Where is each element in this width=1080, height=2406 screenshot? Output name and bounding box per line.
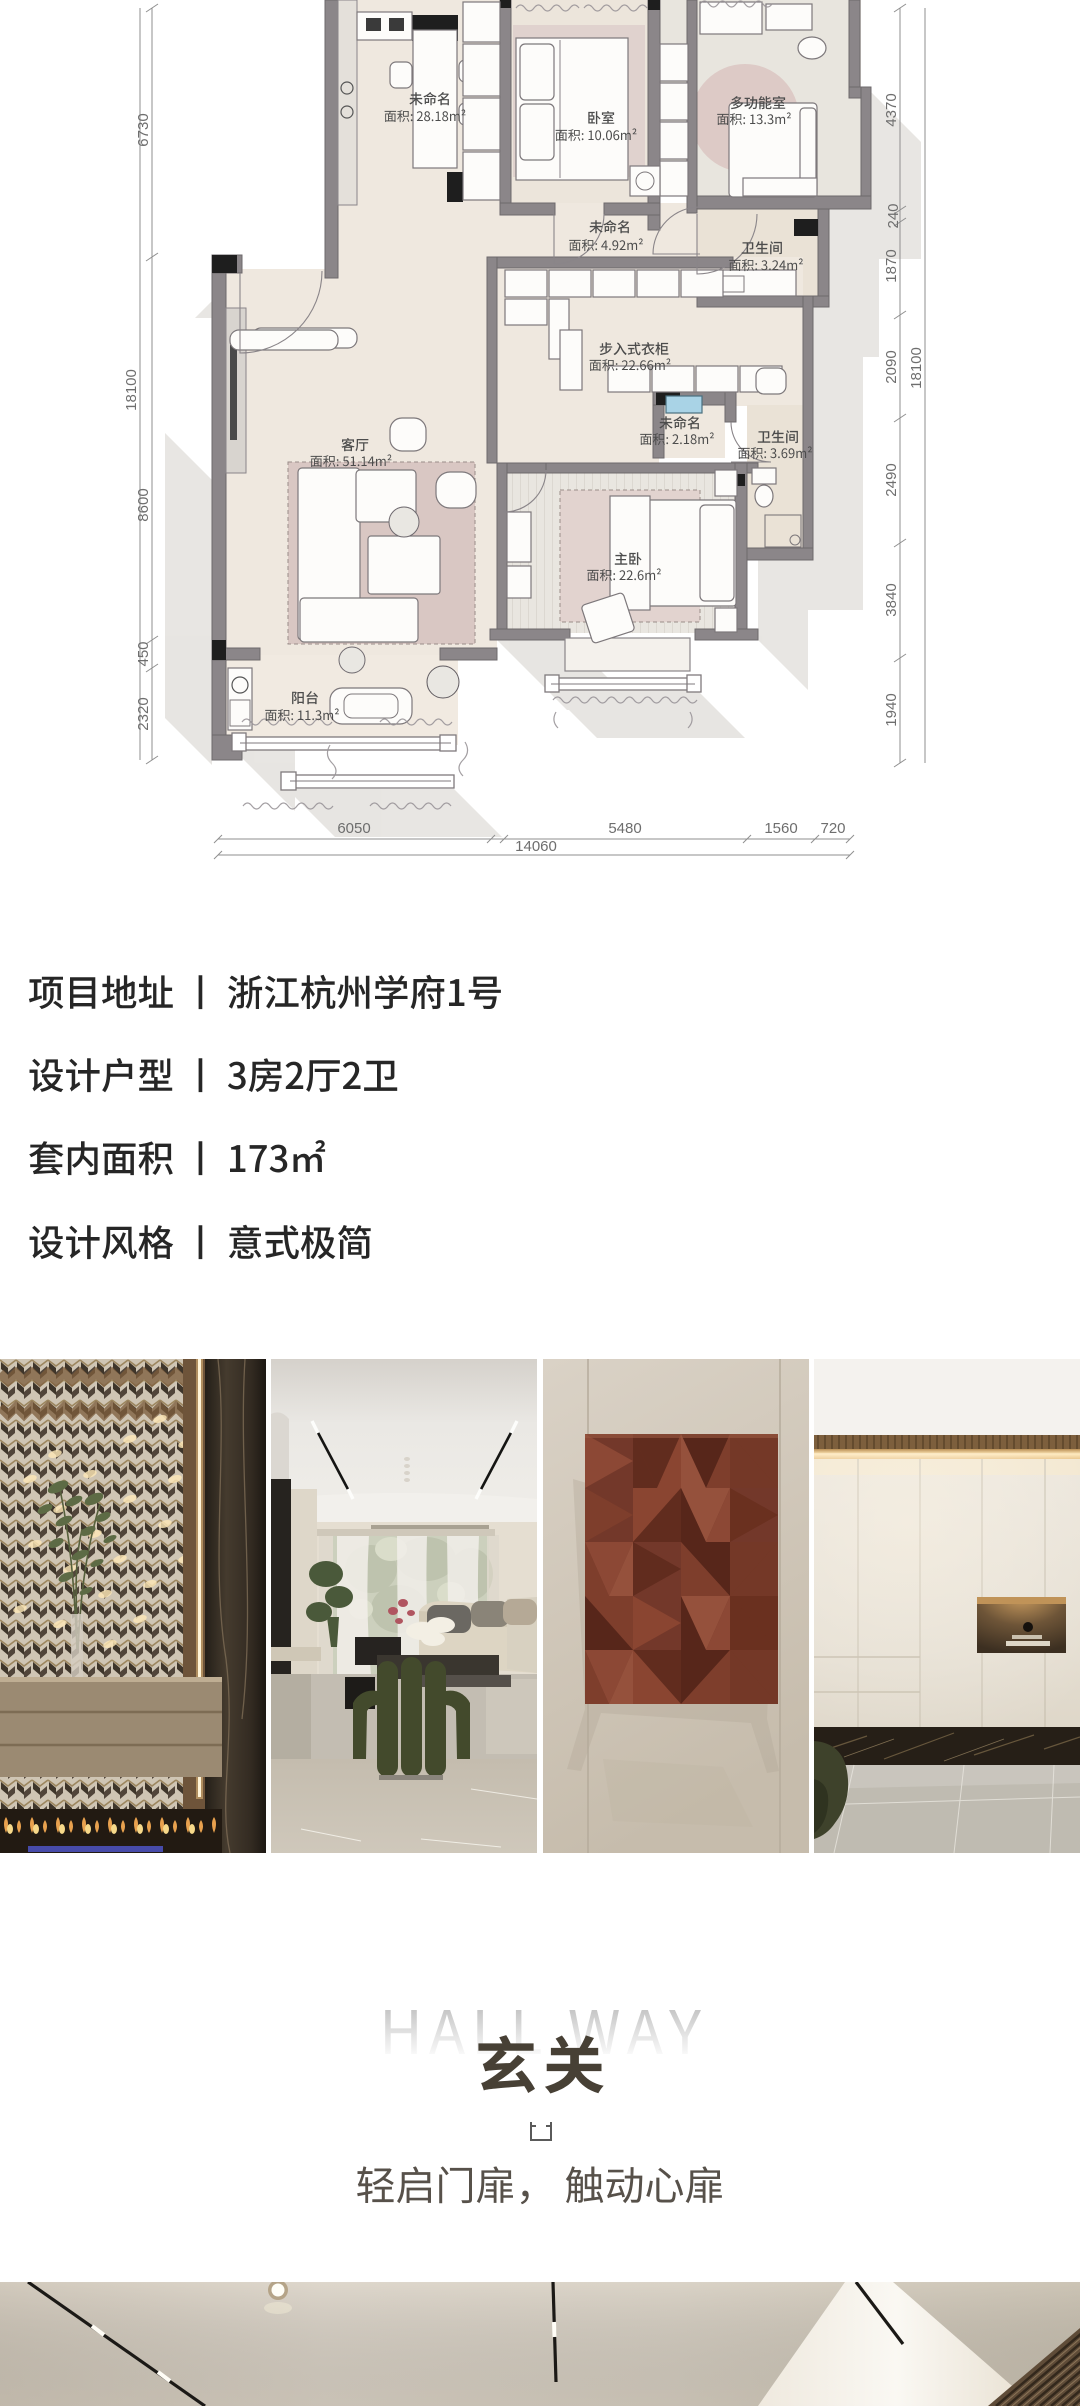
svg-text:5480: 5480 — [608, 820, 641, 837]
svg-text:18100: 18100 — [908, 347, 925, 389]
svg-text:1560: 1560 — [764, 820, 797, 837]
svg-text:1870: 1870 — [883, 249, 900, 282]
svg-text:2490: 2490 — [883, 463, 900, 496]
svg-text:2320: 2320 — [135, 697, 152, 730]
svg-text:6050: 6050 — [337, 820, 370, 837]
svg-text:450: 450 — [135, 641, 152, 666]
svg-text:2090: 2090 — [883, 350, 900, 383]
svg-text:6730: 6730 — [135, 113, 152, 146]
svg-text:720: 720 — [820, 820, 845, 837]
svg-text:8600: 8600 — [135, 488, 152, 521]
svg-text:3840: 3840 — [883, 583, 900, 616]
svg-text:14060: 14060 — [515, 838, 557, 855]
svg-text:4370: 4370 — [883, 93, 900, 126]
svg-text:1940: 1940 — [883, 693, 900, 726]
svg-text:18100: 18100 — [123, 369, 140, 411]
svg-text:240: 240 — [885, 203, 902, 228]
